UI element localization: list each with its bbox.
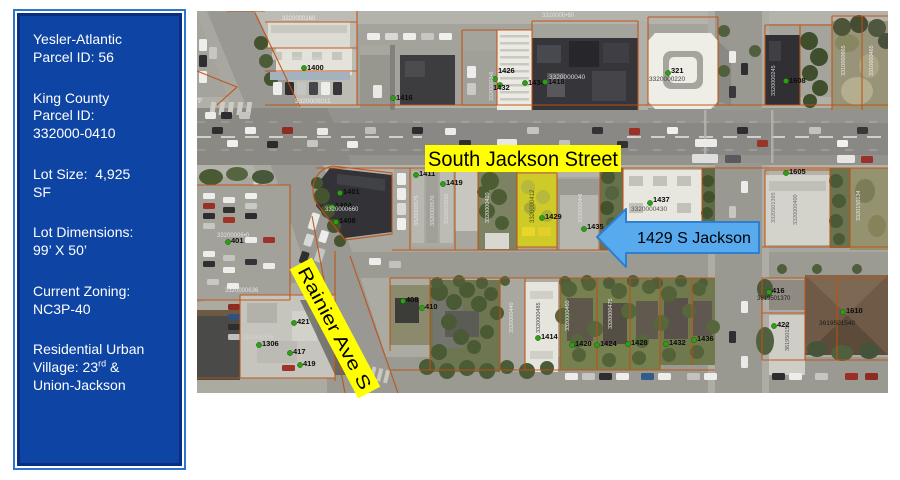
svg-text:1426: 1426	[498, 66, 515, 75]
svg-text:3619501540: 3619501540	[819, 320, 856, 327]
svg-text:1401: 1401	[343, 187, 360, 196]
svg-text:3320000011: 3320000011	[295, 98, 331, 105]
svg-text:1424: 1424	[600, 339, 618, 348]
svg-text:3619501370: 3619501370	[757, 296, 791, 302]
svg-text:1432: 1432	[669, 338, 686, 347]
svg-text:321: 321	[671, 66, 684, 75]
svg-text:33200000•0: 33200000•0	[292, 57, 321, 63]
svg-text:33200006•0: 33200006•0	[217, 233, 250, 239]
svg-text:1429: 1429	[545, 212, 562, 221]
svg-text:3320000245: 3320000245	[771, 65, 777, 96]
svg-text:1416: 1416	[396, 93, 413, 102]
svg-text:3320000•60: 3320000•60	[542, 13, 575, 19]
svg-text:•8: •8	[198, 97, 204, 103]
svg-text:1608: 1608	[789, 76, 806, 85]
svg-text:3320150134: 3320150134	[856, 190, 862, 221]
svg-text:3320000485: 3320000485	[536, 302, 542, 333]
svg-text:1610: 1610	[846, 306, 863, 315]
svg-text:3320000636: 3320000636	[225, 288, 259, 294]
svg-text:3320000412: 3320000412	[530, 189, 536, 223]
svg-text:3320000400: 3320000400	[793, 194, 799, 225]
svg-text:1605: 1605	[789, 167, 806, 176]
svg-text:3310660665: 3310660665	[841, 45, 847, 76]
svg-text:1437: 1437	[653, 195, 670, 204]
svg-text:3320000565: 3320000565	[444, 193, 450, 224]
svg-text:1428: 1428	[631, 338, 648, 347]
svg-text:408: 408	[406, 295, 419, 304]
svg-text:410: 410	[425, 302, 438, 311]
svg-text:3320000660: 3320000660	[325, 207, 359, 213]
svg-text:1420: 1420	[575, 339, 592, 348]
svg-text:3320•00555: 3320•00555	[242, 335, 275, 341]
svg-text:3320000570: 3320000570	[430, 195, 436, 226]
svg-text:1408: 1408	[339, 216, 356, 225]
svg-text:South Jackson Street: South Jackson Street	[428, 148, 618, 171]
svg-text:3320000040: 3320000040	[549, 74, 586, 81]
svg-text:3320501395: 3320501395	[771, 192, 777, 223]
svg-text:421: 421	[297, 317, 310, 326]
svg-text:3320000475: 3320000475	[608, 298, 614, 329]
svg-text:3320000440: 3320000440	[509, 302, 515, 333]
svg-text:33200002•5: 33200002•5	[489, 72, 495, 101]
svg-text:3320000220: 3320000220	[649, 76, 686, 83]
svg-text:1435: 1435	[587, 222, 604, 231]
svg-text:3310660465: 3310660465	[869, 45, 875, 76]
svg-text:1432: 1432	[493, 83, 510, 92]
svg-text:3320000430: 3320000430	[631, 206, 668, 213]
svg-text:419: 419	[303, 359, 316, 368]
svg-text:1419: 1419	[446, 178, 463, 187]
svg-text:417: 417	[293, 347, 306, 356]
svg-text:1400: 1400	[307, 63, 324, 72]
svg-text:3320000575: 3320000575	[414, 195, 420, 226]
svg-text:1429 S Jackson: 1429 S Jackson	[637, 230, 751, 247]
svg-text:1414: 1414	[541, 332, 559, 341]
svg-text:361950157•: 361950157•	[785, 321, 791, 351]
svg-text:1436: 1436	[697, 334, 714, 343]
svg-text:416: 416	[772, 286, 785, 295]
svg-text:3320000460: 3320000460	[565, 300, 571, 331]
svg-text:33200004•8: 33200004•8	[578, 194, 584, 223]
svg-text:3320000420: 3320000420	[485, 192, 491, 223]
svg-text:3320000160: 3320000160	[282, 16, 316, 22]
